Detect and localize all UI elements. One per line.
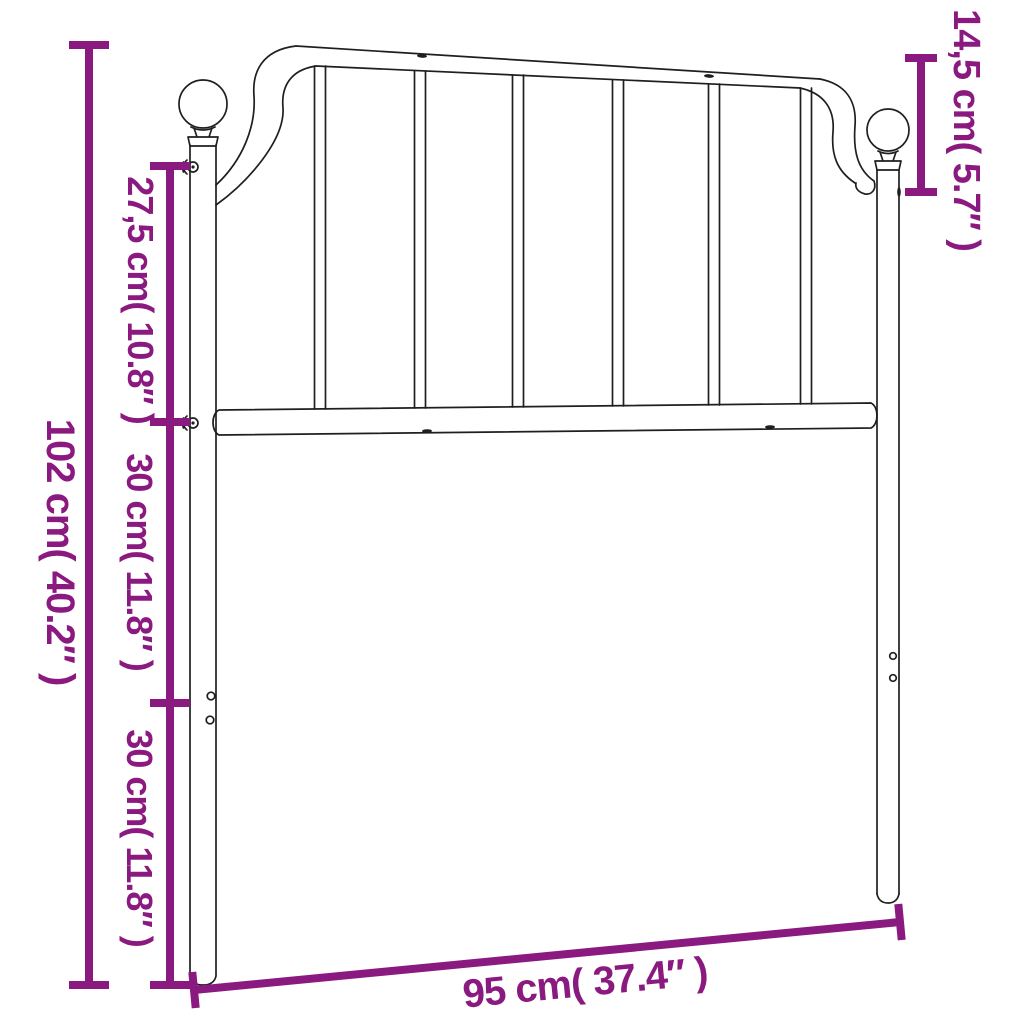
headboard-dimension-diagram: 102 cm( 40.2″ ) 27,5 cm( 10.8″ ) 30 cm( … (0, 0, 1024, 1024)
label-upper-section: 27,5 cm( 10.8″ ) (122, 176, 158, 423)
baluster (415, 71, 426, 408)
right-finial-ball (867, 109, 909, 151)
left-post-tube (190, 145, 216, 976)
top-rail-left-curve (216, 46, 316, 205)
left-post-hole (207, 692, 215, 700)
baluster (513, 75, 524, 407)
joint-mark (704, 74, 714, 78)
right-post-bottom (877, 894, 899, 903)
right-finial-neck (875, 151, 901, 170)
label-total-height: 102 cm( 40.2″ ) (40, 419, 80, 686)
dimension-lines (69, 45, 937, 1008)
baluster (315, 66, 326, 409)
joint-mark (897, 187, 901, 197)
right-post-tube (877, 170, 899, 894)
joint-marks (417, 54, 901, 433)
left-post-hole (206, 716, 214, 724)
label-finial-drop: 14,5 cm( 5.7″ ) (947, 9, 985, 251)
right-post-hole (890, 675, 897, 682)
left-finial-ball (179, 80, 227, 128)
baluster (709, 84, 720, 405)
left-finial-neck (188, 127, 218, 146)
baluster (613, 80, 624, 406)
label-lower-section: 30 cm( 11.8″ ) (121, 729, 157, 946)
top-rail (296, 46, 820, 88)
headboard-frame (179, 46, 909, 985)
left-post (179, 80, 227, 985)
dim-line-finial-drop (905, 58, 937, 192)
label-middle-section: 30 cm( 11.8″ ) (121, 453, 157, 670)
baluster (801, 88, 812, 404)
middle-rail (213, 403, 877, 435)
right-post-hole (890, 653, 897, 660)
right-post (867, 109, 909, 903)
